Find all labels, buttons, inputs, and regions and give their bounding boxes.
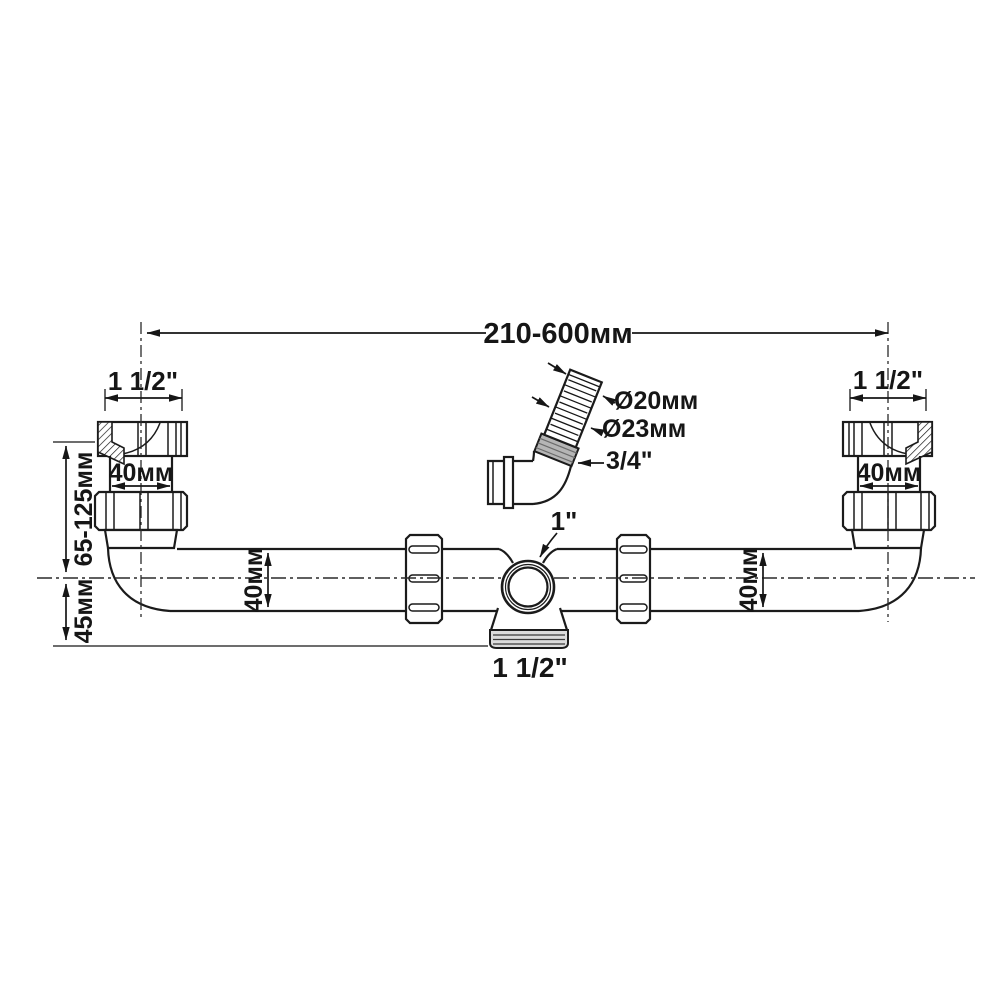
dimension-left-pipe-diameter: 40мм [240, 548, 268, 613]
right-inlet-width-label: 40мм [857, 459, 922, 487]
hose-diameter-arrow-upper-left [548, 363, 566, 374]
hose-outer-diameter-label: Ø23мм [602, 415, 686, 443]
washer-hose-assembly [488, 369, 605, 508]
dimension-top-span: 210-600мм [147, 318, 888, 350]
hose-elbow-bend-inner [533, 451, 534, 461]
left-elbow-outer-curve [108, 548, 170, 611]
center-drop-label: 45мм [70, 579, 98, 644]
tee-left-fillet [499, 549, 513, 563]
hose-diameter-arrow-lower-left [532, 397, 549, 407]
trap-diagram-svg: 210-600мм 1 1/2" 40мм 1 1/2" 40мм 65-125… [0, 0, 1000, 1000]
technical-drawing: 210-600мм 1 1/2" 40мм 1 1/2" 40мм 65-125… [0, 0, 1000, 1000]
tee-inlet-outer-ring [502, 561, 554, 613]
tee-outlet-size-label: 1 1/2" [492, 652, 568, 683]
tee-inlet-leader-arrow [540, 533, 557, 557]
dimension-height-range: 65-125мм [53, 442, 98, 572]
center-tee [490, 549, 568, 648]
corrugated-hose [534, 369, 604, 466]
hose-inner-diameter-label: Ø20мм [614, 387, 698, 415]
right-inlet-size-label: 1 1/2" [853, 365, 923, 395]
left-pipe-nut [406, 535, 442, 623]
tee-right-fillet [543, 549, 557, 563]
left-inlet-width-label: 40мм [109, 459, 174, 487]
left-pipe-diameter-label: 40мм [240, 548, 268, 613]
top-span-label: 210-600мм [483, 318, 632, 350]
dimension-right-pipe-diameter: 40мм [735, 548, 763, 613]
right-elbow-outer-curve [859, 548, 921, 611]
height-range-label: 65-125мм [70, 452, 98, 567]
right-pipe-nut [617, 535, 650, 623]
right-pipe-diameter-label: 40мм [735, 548, 763, 613]
tee-inlet-size-label: 1" [551, 506, 578, 536]
hose-elbow-bend-outer [533, 466, 571, 504]
hose-elbow-flange-ring [504, 457, 513, 508]
hose-nut-size-label: 3/4" [606, 447, 653, 475]
left-inlet-size-label: 1 1/2" [108, 366, 178, 396]
